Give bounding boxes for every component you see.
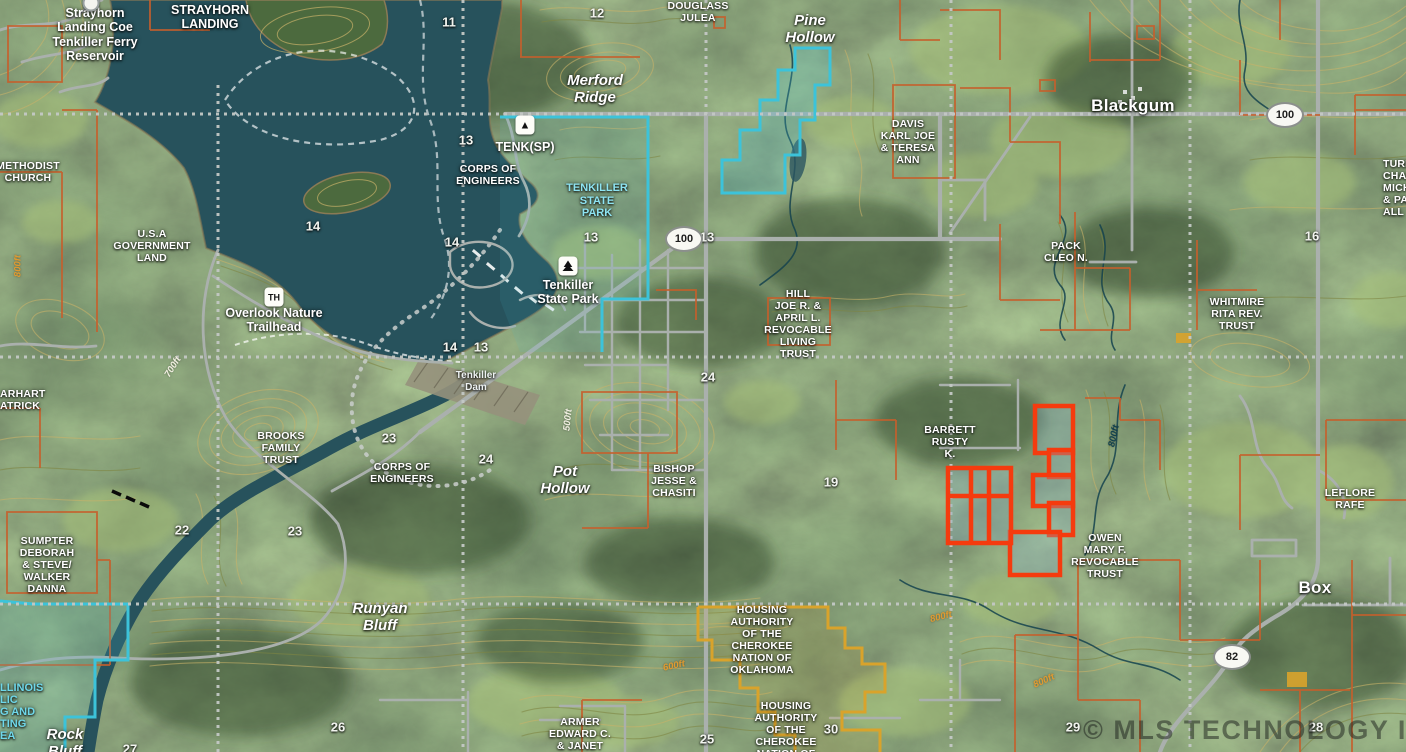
watermark: © MLS TECHNOLOGY INC 2025 <box>1083 715 1406 746</box>
highlighted-parcel <box>1010 532 1060 575</box>
map-canvas[interactable]: Strayhorn Landing Coe Tenkiller Ferry Re… <box>0 0 1406 752</box>
highlighted-parcel <box>1035 406 1073 453</box>
highlighted-parcel <box>948 468 1011 543</box>
map-graphics <box>0 0 1406 752</box>
